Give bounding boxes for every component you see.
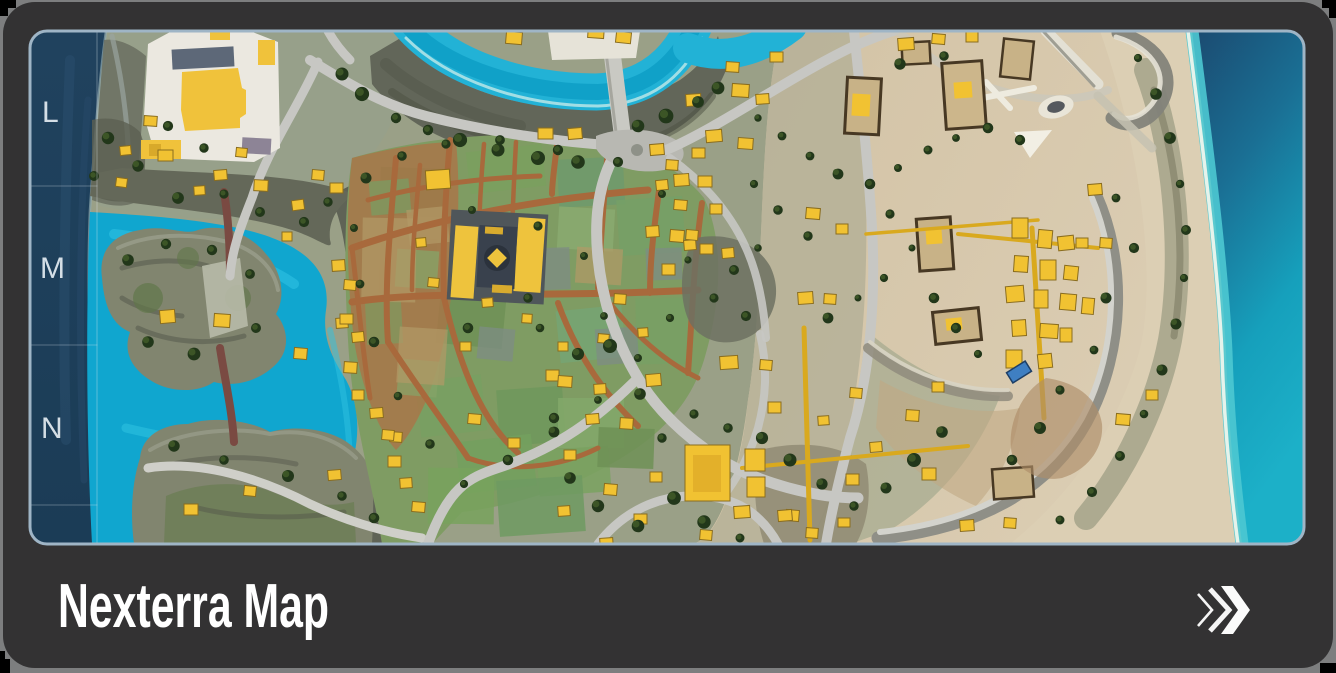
svg-text:L: L bbox=[42, 96, 59, 129]
svg-text:M: M bbox=[40, 252, 65, 285]
svg-text:N: N bbox=[41, 412, 63, 445]
